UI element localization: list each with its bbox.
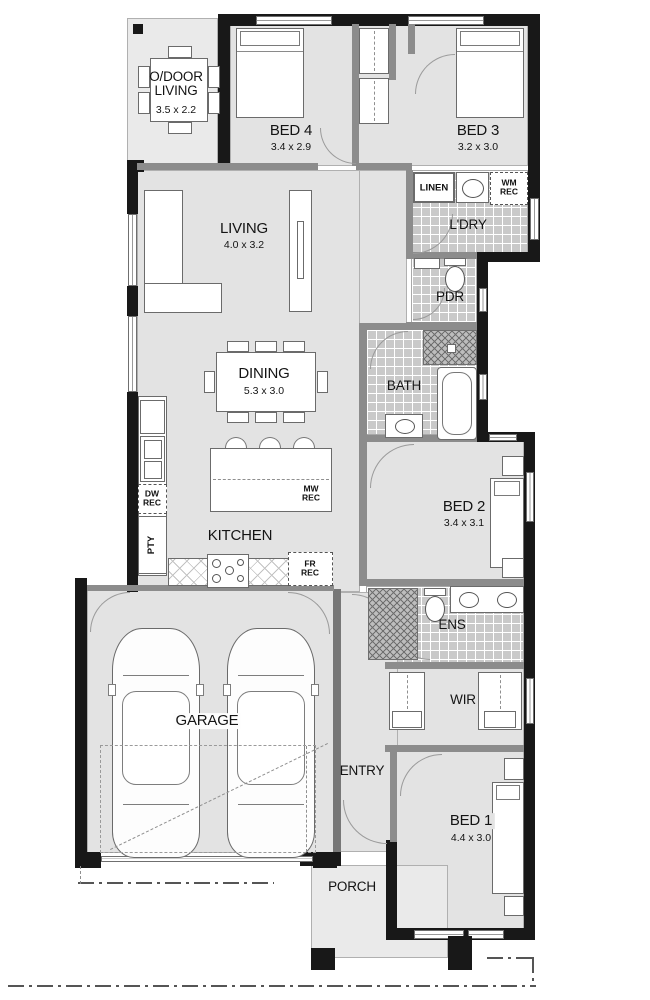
bath-shower xyxy=(423,330,477,365)
wir-rail-right xyxy=(500,675,501,709)
bath-vanity xyxy=(385,414,423,438)
dining-chair-t1 xyxy=(227,341,249,352)
bed4-pillow xyxy=(240,31,300,46)
wir-rail-left xyxy=(407,675,408,709)
sofa-vertical xyxy=(144,190,183,284)
dining-chair-b2 xyxy=(255,412,277,423)
outdoor-chair-top xyxy=(168,46,192,58)
porch-label: PORCH xyxy=(328,880,376,894)
dining-chair-t2 xyxy=(255,341,277,352)
island-split xyxy=(213,479,329,480)
wall-garage-entry xyxy=(333,589,341,852)
dining-chair-t3 xyxy=(283,341,305,352)
dining-dims: 5.3 x 3.0 xyxy=(244,385,284,397)
entry-label: ENTRY xyxy=(340,764,385,778)
wir-shelf-right xyxy=(484,711,516,728)
window-living-1 xyxy=(128,214,137,286)
mw-rec-label: MW REC xyxy=(302,485,320,504)
bed1-side-table-top xyxy=(504,758,524,780)
boundary-tick xyxy=(80,866,81,884)
outdoor-chair-right-1 xyxy=(208,66,220,88)
wall-bedblock-bottom-2 xyxy=(356,163,412,170)
ens-shower xyxy=(368,588,418,660)
wir-robe-right xyxy=(478,672,522,730)
porch-pier-left xyxy=(311,948,335,970)
window-wir-side xyxy=(526,678,534,724)
wall-bath-bed2-left xyxy=(359,323,367,585)
dining-chair-b1 xyxy=(227,412,249,423)
bed3-label: BED 3 xyxy=(457,123,499,139)
wall-left-c xyxy=(127,392,138,592)
garage-label: GARAGE xyxy=(174,713,241,729)
wall-left-b xyxy=(127,286,138,316)
sofa-horizontal xyxy=(144,283,222,313)
burner-5 xyxy=(237,575,244,582)
wir-label: WIR xyxy=(450,693,476,707)
window-bed1-2 xyxy=(468,930,504,939)
wall-bed2-ens-divider xyxy=(359,579,524,586)
wm-rec-label: WM REC xyxy=(500,179,518,198)
tv xyxy=(297,221,304,279)
bath-label: BATH xyxy=(387,379,421,393)
wall-bath-top xyxy=(359,323,477,330)
window-bed2-top xyxy=(489,434,517,441)
ens-label: ENS xyxy=(438,618,465,632)
bed4-label: BED 4 xyxy=(270,123,312,139)
kitchen-wall-cabinet xyxy=(140,400,165,434)
wall-garage-bottom-left xyxy=(75,852,101,868)
odoor-line2: LIVING xyxy=(154,83,197,98)
bed2-pillow xyxy=(494,481,520,496)
bed1-bed xyxy=(492,782,524,894)
bed3-dims: 3.2 x 3.0 xyxy=(458,141,498,153)
dining-label: DINING xyxy=(238,366,289,382)
fr-rec-label: FR REC xyxy=(301,560,319,579)
car-right-windshield xyxy=(238,675,304,676)
living-label: LIVING xyxy=(220,221,268,237)
tv-unit xyxy=(289,190,312,312)
window-bath xyxy=(479,374,487,400)
burner-4 xyxy=(237,559,244,566)
wall-ldry-left xyxy=(406,170,413,258)
dw-rec-label: DW REC xyxy=(143,490,161,509)
wall-robe-right xyxy=(389,24,396,80)
bed2-side-table-bottom xyxy=(502,558,524,578)
outdoor-chair-left-2 xyxy=(138,92,150,114)
hall-robe-2 xyxy=(359,78,389,124)
car-right-mirror-l xyxy=(223,684,231,696)
sink-bowl-2 xyxy=(144,461,162,479)
bed2-label: BED 2 xyxy=(443,499,485,515)
bed1-label: BED 1 xyxy=(447,813,495,829)
dining-chair-b3 xyxy=(283,412,305,423)
bed2-bed xyxy=(490,478,524,568)
wall-bed3-left-stub xyxy=(408,24,415,54)
pdr-vanity xyxy=(414,258,440,269)
bed1-dims: 4.4 x 3.0 xyxy=(451,832,491,844)
window-bed3-top xyxy=(408,16,484,25)
bed3-pillow xyxy=(460,31,520,46)
bed2-dims: 3.4 x 3.1 xyxy=(444,517,484,529)
burner-1 xyxy=(212,559,221,568)
garage-pier-right xyxy=(313,852,337,868)
wall-bedblock-bottom-1 xyxy=(137,163,318,170)
robe2-rail xyxy=(374,81,375,121)
wir-robe-left xyxy=(389,672,425,730)
living-dims: 4.0 x 3.2 xyxy=(224,239,264,251)
burner-3 xyxy=(225,566,234,575)
trough-basin xyxy=(462,179,484,198)
sink-bowl-1 xyxy=(144,440,162,459)
bath-basin xyxy=(395,419,415,434)
bed4-foldline xyxy=(237,51,303,52)
pdr-cistern xyxy=(444,258,466,266)
bed4-dims: 3.4 x 2.9 xyxy=(271,141,311,153)
pty-label: PTY xyxy=(147,536,157,554)
boundary-porch-step-h xyxy=(487,957,535,959)
ldry-label: L'DRY xyxy=(449,218,486,232)
car-left-mirror-l xyxy=(108,684,116,696)
cooktop xyxy=(207,554,249,588)
porch-pier-right xyxy=(448,936,472,970)
car-right-mirror-r xyxy=(311,684,319,696)
bathtub-inner xyxy=(442,372,472,435)
ens-vanity xyxy=(450,586,524,613)
outdoor-chair-right-2 xyxy=(208,92,220,114)
hall-robe-1 xyxy=(359,28,389,74)
bath-shower-drain xyxy=(447,344,456,353)
car-left-windshield xyxy=(123,675,189,676)
odoor-line1: O/DOOR xyxy=(149,69,203,84)
linen-label: LINEN xyxy=(420,183,449,194)
kitchen-sink xyxy=(140,436,165,482)
window-pdr xyxy=(479,288,487,312)
laundry-trough xyxy=(456,172,489,203)
burner-2 xyxy=(212,574,221,583)
boundary-porch-step-v xyxy=(532,957,534,987)
wall-ldry-jog xyxy=(477,252,540,262)
wall-bed1-left-upper xyxy=(390,752,397,842)
bed4-bed xyxy=(236,28,304,118)
wall-wir-bed1-divider xyxy=(385,745,524,752)
wall-garage-left xyxy=(75,578,87,868)
bed1-side-table-bottom xyxy=(504,896,524,916)
odoor-living-label: O/DOOR LIVING xyxy=(149,70,203,98)
bathtub xyxy=(437,367,477,440)
odoor-dims: 3.5 x 2.2 xyxy=(156,104,196,116)
ens-cistern xyxy=(424,588,446,596)
ens-basin-1 xyxy=(459,592,479,608)
ens-basin-2 xyxy=(497,592,517,608)
bed3-bed xyxy=(456,28,524,118)
car-left-mirror-r xyxy=(196,684,204,696)
kitchen-label: KITCHEN xyxy=(208,528,272,544)
odoor-corner-marker xyxy=(133,24,143,34)
wall-ens-wir-divider xyxy=(385,662,524,669)
window-bed4-top xyxy=(256,16,332,25)
outdoor-chair-left-1 xyxy=(138,66,150,88)
dining-chair-r xyxy=(317,371,328,393)
bed2-side-table-top xyxy=(502,456,524,476)
outdoor-chair-bottom xyxy=(168,122,192,134)
hall-floor-upper xyxy=(359,170,407,330)
boundary-left-mid xyxy=(78,882,274,884)
boundary-entry-side xyxy=(306,746,307,852)
bed3-foldline xyxy=(457,51,523,52)
pdr-label: PDR xyxy=(436,290,464,304)
wir-shelf-left xyxy=(392,711,422,728)
boundary-bottom xyxy=(8,985,536,987)
floor-plan: O/DOOR LIVING 3.5 x 2.2 BED 4 3.4 x 2.9 … xyxy=(0,0,650,1000)
robe1-rail xyxy=(374,31,375,71)
bed1-pillow xyxy=(496,785,520,800)
window-living-2 xyxy=(128,316,137,392)
dining-chair-l xyxy=(204,371,215,393)
window-ldry xyxy=(530,198,539,240)
wall-bed1-porch xyxy=(386,840,397,940)
window-bed2-side xyxy=(526,472,534,522)
